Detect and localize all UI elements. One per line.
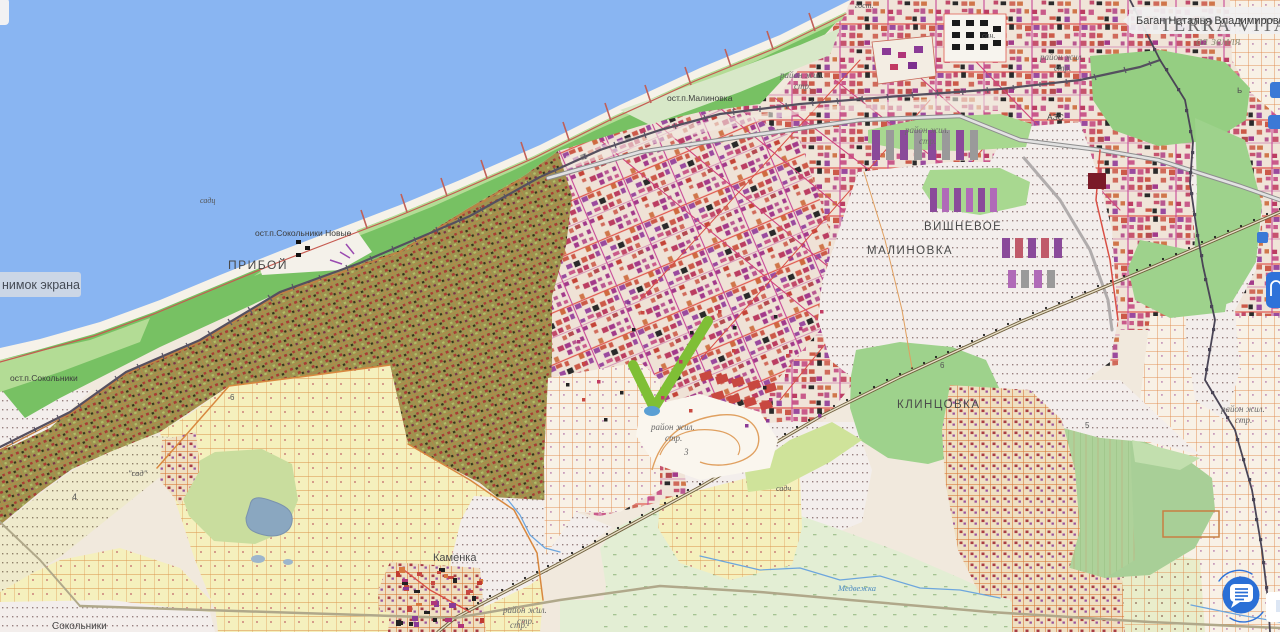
svg-text:стр.: стр. xyxy=(665,433,682,443)
svg-text:TERRA VITA: TERRA VITA xyxy=(1160,15,1280,36)
svg-text:Каменка: Каменка xyxy=(433,552,477,564)
svg-text:район жил.: район жил. xyxy=(1039,52,1084,62)
svg-text:ВИШНЕВОЕ: ВИШНЕВОЕ xyxy=(924,221,1002,233)
svg-text:гост.: гост. xyxy=(855,1,874,10)
svg-text:стр.: стр. xyxy=(794,81,811,91)
svg-text:район жил.: район жил. xyxy=(1220,404,1265,414)
svg-text:район жил.: район жил. xyxy=(650,422,695,432)
svg-text:ая земля: ая земля xyxy=(1196,34,1241,48)
svg-text:КЛИНЦОВКА: КЛИНЦОВКА xyxy=(897,399,981,411)
svg-text:6: 6 xyxy=(940,361,945,370)
svg-text:район жил.: район жил. xyxy=(904,125,949,135)
svg-text:стр.: стр. xyxy=(1054,63,1071,73)
svg-text:4: 4 xyxy=(72,492,77,502)
svg-text:"сад": "сад" xyxy=(128,468,148,478)
svg-text:5: 5 xyxy=(1085,421,1090,430)
svg-text:стр.: стр. xyxy=(1235,415,1252,425)
svg-text:ост.п.Сокольники Новые: ост.п.Сокольники Новые xyxy=(255,228,352,238)
svg-text:сан.: сан. xyxy=(982,31,995,40)
svg-text:стр.: стр. xyxy=(919,136,936,146)
svg-text:ост.п.Малиновка: ост.п.Малиновка xyxy=(667,93,733,103)
svg-text:МАЛИНОВКА: МАЛИНОВКА xyxy=(867,245,953,257)
svg-text:6: 6 xyxy=(230,393,235,402)
svg-text:Медвежка: Медвежка xyxy=(837,583,876,593)
svg-text:ь: ь xyxy=(1237,85,1242,96)
svg-text:садц: садц xyxy=(200,196,215,205)
svg-text:АЗС: АЗС xyxy=(1047,112,1064,122)
svg-text:ост.п.Сокольники: ост.п.Сокольники xyxy=(10,373,78,383)
svg-text:садч: садч xyxy=(776,484,791,493)
svg-text:район жил.: район жил. xyxy=(502,605,547,615)
svg-text:нимок экрана: нимок экрана xyxy=(2,278,80,292)
svg-text:3: 3 xyxy=(683,447,689,457)
svg-text:стр.: стр. xyxy=(510,620,527,630)
svg-text:ПРИБОЙ: ПРИБОЙ xyxy=(228,257,288,272)
svg-text:район жил.: район жил. xyxy=(779,70,824,80)
svg-text:Сокольники: Сокольники xyxy=(52,621,107,632)
